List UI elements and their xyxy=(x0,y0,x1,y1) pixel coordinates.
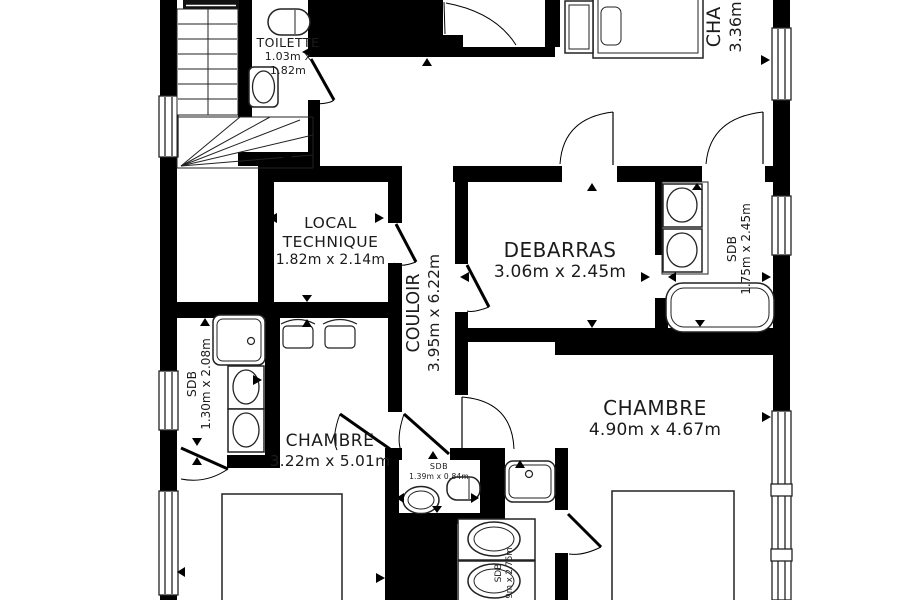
bathtub xyxy=(666,283,774,332)
room-dims: 3.36m xyxy=(726,0,746,58)
room-name: SDB xyxy=(724,186,739,312)
room-label-toilette: TOILETTE 1.03m x 1.82m xyxy=(242,35,334,77)
window xyxy=(159,491,178,595)
floorplan-page: TOILETTE 1.03m x 1.82m LOCAL TECHNIQUE 1… xyxy=(0,0,900,600)
room-name: CHAMBRE xyxy=(580,396,730,420)
door-sdb-small xyxy=(399,414,449,454)
window xyxy=(159,96,178,157)
window xyxy=(771,411,792,600)
room-name: CHAMBRE xyxy=(255,431,405,452)
room-label-chambre-top: CHA 3.36m xyxy=(703,0,746,58)
room-label-sdb-left: SDB 1.30m x 2.08m xyxy=(184,316,214,452)
window xyxy=(159,371,178,430)
door-chambre-top-a xyxy=(560,112,613,165)
room-dims: 1.75m x 2.45m xyxy=(739,186,754,312)
room-dims: 1.82m x 2.14m xyxy=(268,252,393,269)
chair xyxy=(323,320,357,349)
room-label-sdb-right: SDB 1.75m x 2.45m xyxy=(724,186,754,312)
door-sdb-left xyxy=(181,448,228,480)
room-label-chambre-left: CHAMBRE 3.22m x 5.01m xyxy=(255,431,405,471)
room-name: SDB xyxy=(398,462,480,472)
room-dims: 9m x 2.75m xyxy=(505,536,515,600)
shower xyxy=(505,461,555,502)
window xyxy=(772,28,791,100)
room-name: TECHNIQUE xyxy=(268,233,393,252)
door-chambre-right xyxy=(462,397,514,449)
room-name: LOCAL xyxy=(268,214,393,233)
room-dims: 1.03m x xyxy=(242,50,334,63)
room-label-debarras: DEBARRAS 3.06m x 2.45m xyxy=(480,238,640,283)
room-label-local-technique: LOCAL TECHNIQUE 1.82m x 2.14m xyxy=(268,214,393,269)
room-label-sdb-small: SDB 1.39m x 0.84m xyxy=(398,462,480,481)
room-name: CHA xyxy=(703,0,726,58)
shower xyxy=(213,315,265,365)
room-name: SDB xyxy=(184,316,199,452)
room-name: TOILETTE xyxy=(242,35,334,50)
door-sdb-bottom xyxy=(568,514,601,554)
room-dims: 3.22m x 5.01m xyxy=(255,452,405,471)
window xyxy=(772,196,791,255)
sink xyxy=(403,487,439,514)
room-dims: 4.90m x 4.67m xyxy=(580,420,730,441)
room-label-sdb-bottom: SDB 9m x 2.75m xyxy=(494,536,515,600)
room-dims: 3.95m x 6.22m xyxy=(425,248,444,378)
room-name: SDB xyxy=(494,536,505,600)
room-name: DEBARRAS xyxy=(480,238,640,262)
wardrobe xyxy=(565,1,593,53)
floorplan-drawing xyxy=(0,0,900,600)
room-label-chambre-right: CHAMBRE 4.90m x 4.67m xyxy=(580,396,730,441)
room-dims: 3.06m x 2.45m xyxy=(480,262,640,283)
room-label-couloir: COULOIR 3.95m x 6.22m xyxy=(404,248,444,378)
room-dims: 1.30m x 2.08m xyxy=(199,316,214,452)
double-sink xyxy=(662,182,708,274)
room-dims: 1.39m x 0.84m xyxy=(398,472,480,481)
bed xyxy=(593,0,703,58)
room-dims: 1.82m xyxy=(242,64,334,77)
bed xyxy=(612,491,734,600)
door-chambre-top-b xyxy=(706,112,763,164)
room-name: COULOIR xyxy=(404,248,425,378)
toilet xyxy=(268,9,310,35)
bed xyxy=(222,494,342,600)
